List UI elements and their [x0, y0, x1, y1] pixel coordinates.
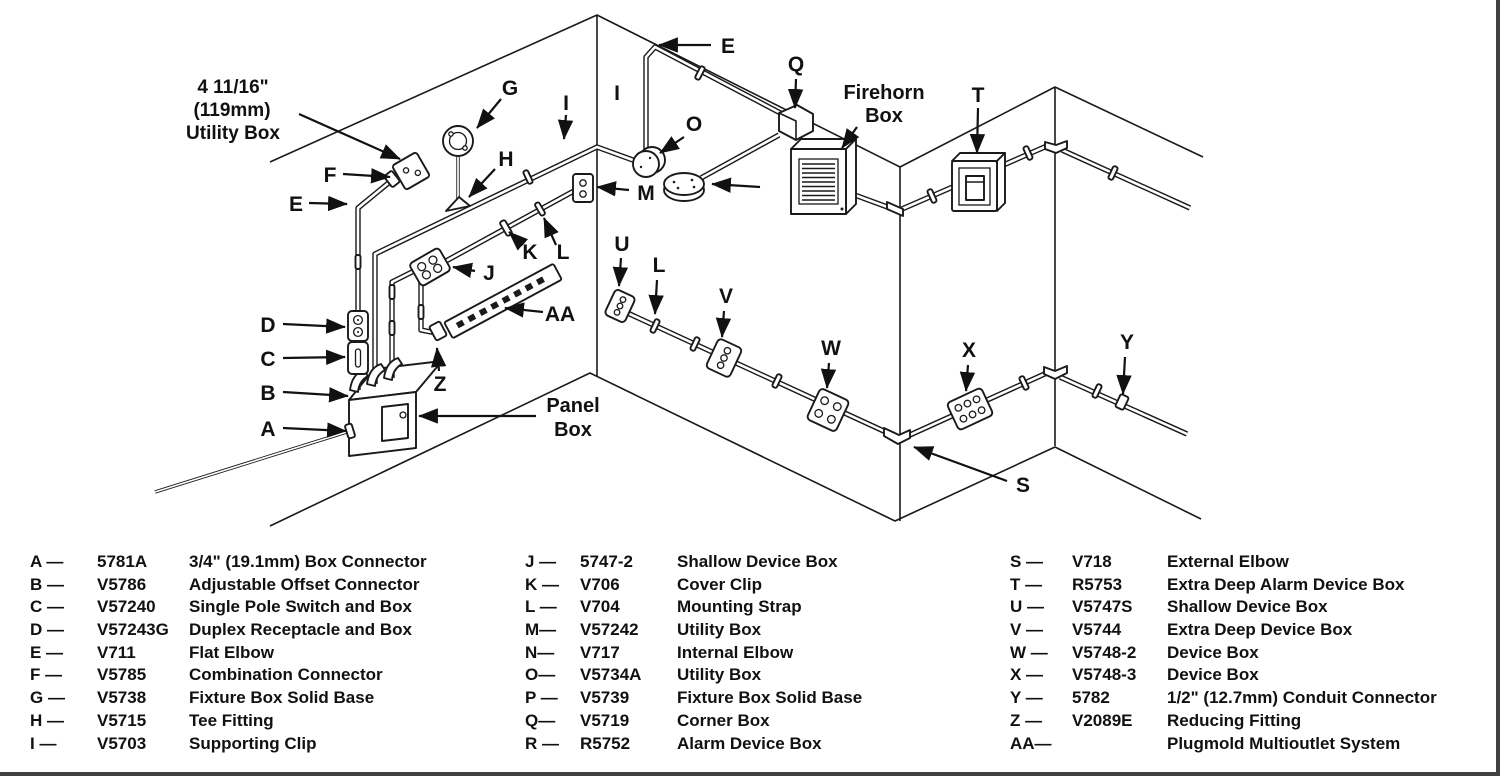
legend-desc: Fixture Box Solid Base [189, 687, 525, 710]
legend-part: V5786 [97, 574, 189, 597]
arrow-f [343, 174, 390, 177]
legend-part: V5747S [1072, 596, 1167, 619]
legend-column-3: S —V718External Elbow T —R5753Extra Deep… [1010, 551, 1490, 755]
arrow-q [795, 79, 796, 108]
legend-key: O— [525, 664, 580, 687]
legend-desc: Reducing Fitting [1167, 710, 1490, 733]
arrow-b [283, 392, 348, 396]
legend-row: U —V5747SShallow Device Box [1010, 596, 1490, 619]
arrow-m [597, 187, 629, 190]
arrow-w [827, 363, 829, 388]
firehorn-box [791, 139, 856, 214]
legend-desc: Plugmold Multioutlet System [1167, 733, 1490, 756]
legend-row: M—V57242Utility Box [525, 619, 1010, 642]
arrow-k [509, 232, 523, 245]
legend-row: J —5747-2Shallow Device Box [525, 551, 1010, 574]
diagram-canvas: 4 11/16" (119mm) Utility Box F E G H I D… [0, 0, 1500, 545]
legend-key: R — [525, 733, 580, 756]
arrow-fixture-base-p [712, 184, 760, 187]
legend-key: D — [30, 619, 97, 642]
legend-row: T —R5753Extra Deep Alarm Device Box [1010, 574, 1490, 597]
fixture-box-g [443, 126, 473, 156]
legend-key: Z — [1010, 710, 1072, 733]
legend-row: G —V5738Fixture Box Solid Base [30, 687, 525, 710]
arrow-a [283, 428, 346, 431]
arrow-t [977, 108, 978, 153]
legend-desc: 3/4" (19.1mm) Box Connector [189, 551, 525, 574]
arrow-g [477, 99, 501, 128]
legend-row: P —V5739Fixture Box Solid Base [525, 687, 1010, 710]
utility-note-line1: 4 11/16" [197, 77, 268, 98]
device-box-v [705, 338, 742, 378]
label-f: F [324, 164, 337, 187]
legend-key: M— [525, 619, 580, 642]
legend-row: L —V704Mounting Strap [525, 596, 1010, 619]
legend-key: W — [1010, 642, 1072, 665]
raceway-disk-to-q [701, 135, 779, 178]
legend-key: AA— [1010, 733, 1072, 756]
fixture-base-disk-p [664, 173, 704, 201]
legend-part: 5747-2 [580, 551, 677, 574]
legend-part: V5748-2 [1072, 642, 1167, 665]
legend-row: X —V5748-3Device Box [1010, 664, 1490, 687]
scan-edge-bottom [0, 772, 1500, 776]
label-w: W [821, 337, 841, 360]
external-elbow-s [884, 428, 910, 444]
raceway-midwall-elbow-to-q [646, 47, 788, 151]
legend-row: R —R5752Alarm Device Box [525, 733, 1010, 756]
legend-part: 5782 [1072, 687, 1167, 710]
utility-box-o [633, 147, 665, 177]
legend-row: V —V5744Extra Deep Device Box [1010, 619, 1490, 642]
plugmold-strip-aa [444, 264, 562, 339]
label-z: Z [434, 373, 447, 396]
label-i-mid: I [614, 82, 620, 105]
legend-part: V704 [580, 596, 677, 619]
legend-key: Y — [1010, 687, 1072, 710]
legend-desc: Tee Fitting [189, 710, 525, 733]
raceway-wallc-upper [1062, 150, 1190, 208]
legend-key: T — [1010, 574, 1072, 597]
arrow-h [469, 169, 495, 197]
firehorn-callout-line1: Firehorn [843, 82, 924, 104]
legend-desc: Single Pole Switch and Box [189, 596, 525, 619]
alarm-device-box-t [952, 153, 1005, 211]
legend-desc: Extra Deep Device Box [1167, 619, 1490, 642]
legend-row: I —V5703Supporting Clip [30, 733, 525, 756]
legend-key: C — [30, 596, 97, 619]
legend-key: Q— [525, 710, 580, 733]
legend-row: D —V57243GDuplex Receptacle and Box [30, 619, 525, 642]
utility-note-line2: (119mm) [193, 100, 270, 121]
legend-row: Q—V5719Corner Box [525, 710, 1010, 733]
arrow-aa [505, 308, 543, 312]
legend-part: V5715 [97, 710, 189, 733]
legend-key: X — [1010, 664, 1072, 687]
diagram-labels: 4 11/16" (119mm) Utility Box F E G H I D… [186, 35, 1134, 497]
legend-desc: Adjustable Offset Connector [189, 574, 525, 597]
legend-desc: Supporting Clip [189, 733, 525, 756]
legend-part: V5738 [97, 687, 189, 710]
legend-desc: Device Box [1167, 664, 1490, 687]
legend-key: J — [525, 551, 580, 574]
legend-desc: Device Box [1167, 642, 1490, 665]
legend-desc: Internal Elbow [677, 642, 1010, 665]
arrow-u [619, 258, 621, 286]
legend-desc: External Elbow [1167, 551, 1490, 574]
legend-key: U — [1010, 596, 1072, 619]
legend-desc: Shallow Device Box [1167, 596, 1490, 619]
label-h: H [498, 148, 513, 171]
arrow-l-left [544, 218, 556, 245]
label-m: M [637, 182, 655, 205]
arrow-i-left [564, 115, 566, 139]
label-c: C [260, 348, 275, 371]
arrow-y [1123, 357, 1125, 394]
panel-box-callout-line2: Box [554, 419, 592, 441]
legend-column-1: A —5781A3/4" (19.1mm) Box Connector B —V… [30, 551, 525, 755]
label-l-left: L [557, 241, 570, 264]
legend-part: V718 [1072, 551, 1167, 574]
arrow-o [660, 137, 684, 153]
legend-desc: Corner Box [677, 710, 1010, 733]
legend-key: A — [30, 551, 97, 574]
legend-part: V711 [97, 642, 189, 665]
label-o: O [686, 113, 702, 136]
legend-part: V57242 [580, 619, 677, 642]
legend-desc: Utility Box [677, 664, 1010, 687]
legend-part: V2089E [1072, 710, 1167, 733]
switch-box-c [348, 342, 368, 374]
legend-row: H —V5715Tee Fitting [30, 710, 525, 733]
firehorn-callout-line2: Box [865, 105, 903, 127]
device-box-w [806, 388, 849, 432]
arrow-d [283, 324, 345, 327]
arrow-e-left [309, 203, 347, 204]
label-b: B [260, 382, 275, 405]
wiremold-raceway-diagram-page: { "diagram": { "note": {"line1": "4 11/1… [0, 0, 1500, 776]
legend-row: B —V5786Adjustable Offset Connector [30, 574, 525, 597]
label-s: S [1016, 474, 1030, 497]
panel-box-callout-line1: Panel [546, 395, 599, 417]
legend-key: S — [1010, 551, 1072, 574]
label-g: G [502, 77, 518, 100]
legend-row: K —V706Cover Clip [525, 574, 1010, 597]
label-i-left: I [563, 92, 569, 115]
legend-key: L — [525, 596, 580, 619]
raceway-midwall-elbow-to-q [646, 47, 788, 151]
legend-row: Z —V2089EReducing Fitting [1010, 710, 1490, 733]
label-q: Q [788, 53, 804, 76]
arrow-c [283, 357, 345, 358]
conduit-a-feed [155, 431, 350, 492]
legend-key: N— [525, 642, 580, 665]
legend-part: V5785 [97, 664, 189, 687]
legend-row: C —V57240Single Pole Switch and Box [30, 596, 525, 619]
legend-key: K — [525, 574, 580, 597]
legend-desc: Flat Elbow [189, 642, 525, 665]
arrow-s [914, 447, 1007, 481]
legend-desc: 1/2" (12.7mm) Conduit Connector [1167, 687, 1490, 710]
device-box-x [946, 387, 993, 430]
arrow-l-mid [655, 280, 657, 314]
legend-row: E —V711Flat Elbow [30, 642, 525, 665]
legend-key: G — [30, 687, 97, 710]
legend-row: AA—Plugmold Multioutlet System [1010, 733, 1490, 756]
legend-column-2: J —5747-2Shallow Device Box K —V706Cover… [525, 551, 1010, 755]
legend-key: E — [30, 642, 97, 665]
legend-desc: Shallow Device Box [677, 551, 1010, 574]
legend-desc: Fixture Box Solid Base [677, 687, 1010, 710]
label-d: D [260, 314, 275, 337]
shallow-device-box-u [604, 289, 636, 324]
legend-row: O—V5734AUtility Box [525, 664, 1010, 687]
legend-desc: Duplex Receptacle and Box [189, 619, 525, 642]
label-a: A [260, 418, 275, 441]
legend-part: V5734A [580, 664, 677, 687]
label-l-mid: L [653, 254, 666, 277]
utility-note-line3: Utility Box [186, 123, 280, 144]
legend-key: V — [1010, 619, 1072, 642]
label-v: V [719, 285, 733, 308]
legend-part: 5781A [97, 551, 189, 574]
legend-desc: Alarm Device Box [677, 733, 1010, 756]
legend-part: V5719 [580, 710, 677, 733]
device-box-j [409, 247, 451, 287]
legend-key: B — [30, 574, 97, 597]
legend-part: V5703 [97, 733, 189, 756]
legend-part: V57240 [97, 596, 189, 619]
legend-part: V5739 [580, 687, 677, 710]
legend-key: P — [525, 687, 580, 710]
legend-desc: Extra Deep Alarm Device Box [1167, 574, 1490, 597]
arrow-x [966, 365, 968, 391]
legend-row: N—V717Internal Elbow [525, 642, 1010, 665]
label-u: U [614, 233, 629, 256]
corner-box-q [779, 105, 813, 140]
parts-legend: A —5781A3/4" (19.1mm) Box Connector B —V… [30, 551, 1490, 755]
legend-part: V706 [580, 574, 677, 597]
label-aa: AA [545, 303, 575, 326]
scan-edge-right [1496, 0, 1500, 776]
legend-desc: Combination Connector [189, 664, 525, 687]
label-e-top: E [721, 35, 735, 58]
legend-part: V57243G [97, 619, 189, 642]
legend-key: F — [30, 664, 97, 687]
legend-row: Y —57821/2" (12.7mm) Conduit Connector [1010, 687, 1490, 710]
label-t: T [972, 84, 985, 107]
legend-row: W —V5748-2Device Box [1010, 642, 1490, 665]
legend-part: V5748-3 [1072, 664, 1167, 687]
label-x: X [962, 339, 976, 362]
arrow-v [722, 311, 724, 337]
raceway-lower-main [621, 310, 888, 433]
legend-part: R5752 [580, 733, 677, 756]
legend-row: F —V5785Combination Connector [30, 664, 525, 687]
arrow-j [453, 267, 475, 271]
legend-part: R5753 [1072, 574, 1167, 597]
label-j: J [483, 262, 495, 285]
legend-row: S —V718External Elbow [1010, 551, 1490, 574]
legend-desc: Cover Clip [677, 574, 1010, 597]
label-k: K [522, 241, 537, 264]
utility-box-m [573, 174, 593, 202]
duplex-receptacle-d [348, 311, 368, 341]
legend-part: V717 [580, 642, 677, 665]
label-e-left: E [289, 193, 303, 216]
arrow-utility-note [299, 114, 400, 159]
label-y: Y [1120, 331, 1134, 354]
legend-row: A —5781A3/4" (19.1mm) Box Connector [30, 551, 525, 574]
legend-desc: Mounting Strap [677, 596, 1010, 619]
legend-part: V5744 [1072, 619, 1167, 642]
raceway-runs [155, 47, 1190, 492]
legend-desc: Utility Box [677, 619, 1010, 642]
legend-key: I — [30, 733, 97, 756]
legend-key: H — [30, 710, 97, 733]
